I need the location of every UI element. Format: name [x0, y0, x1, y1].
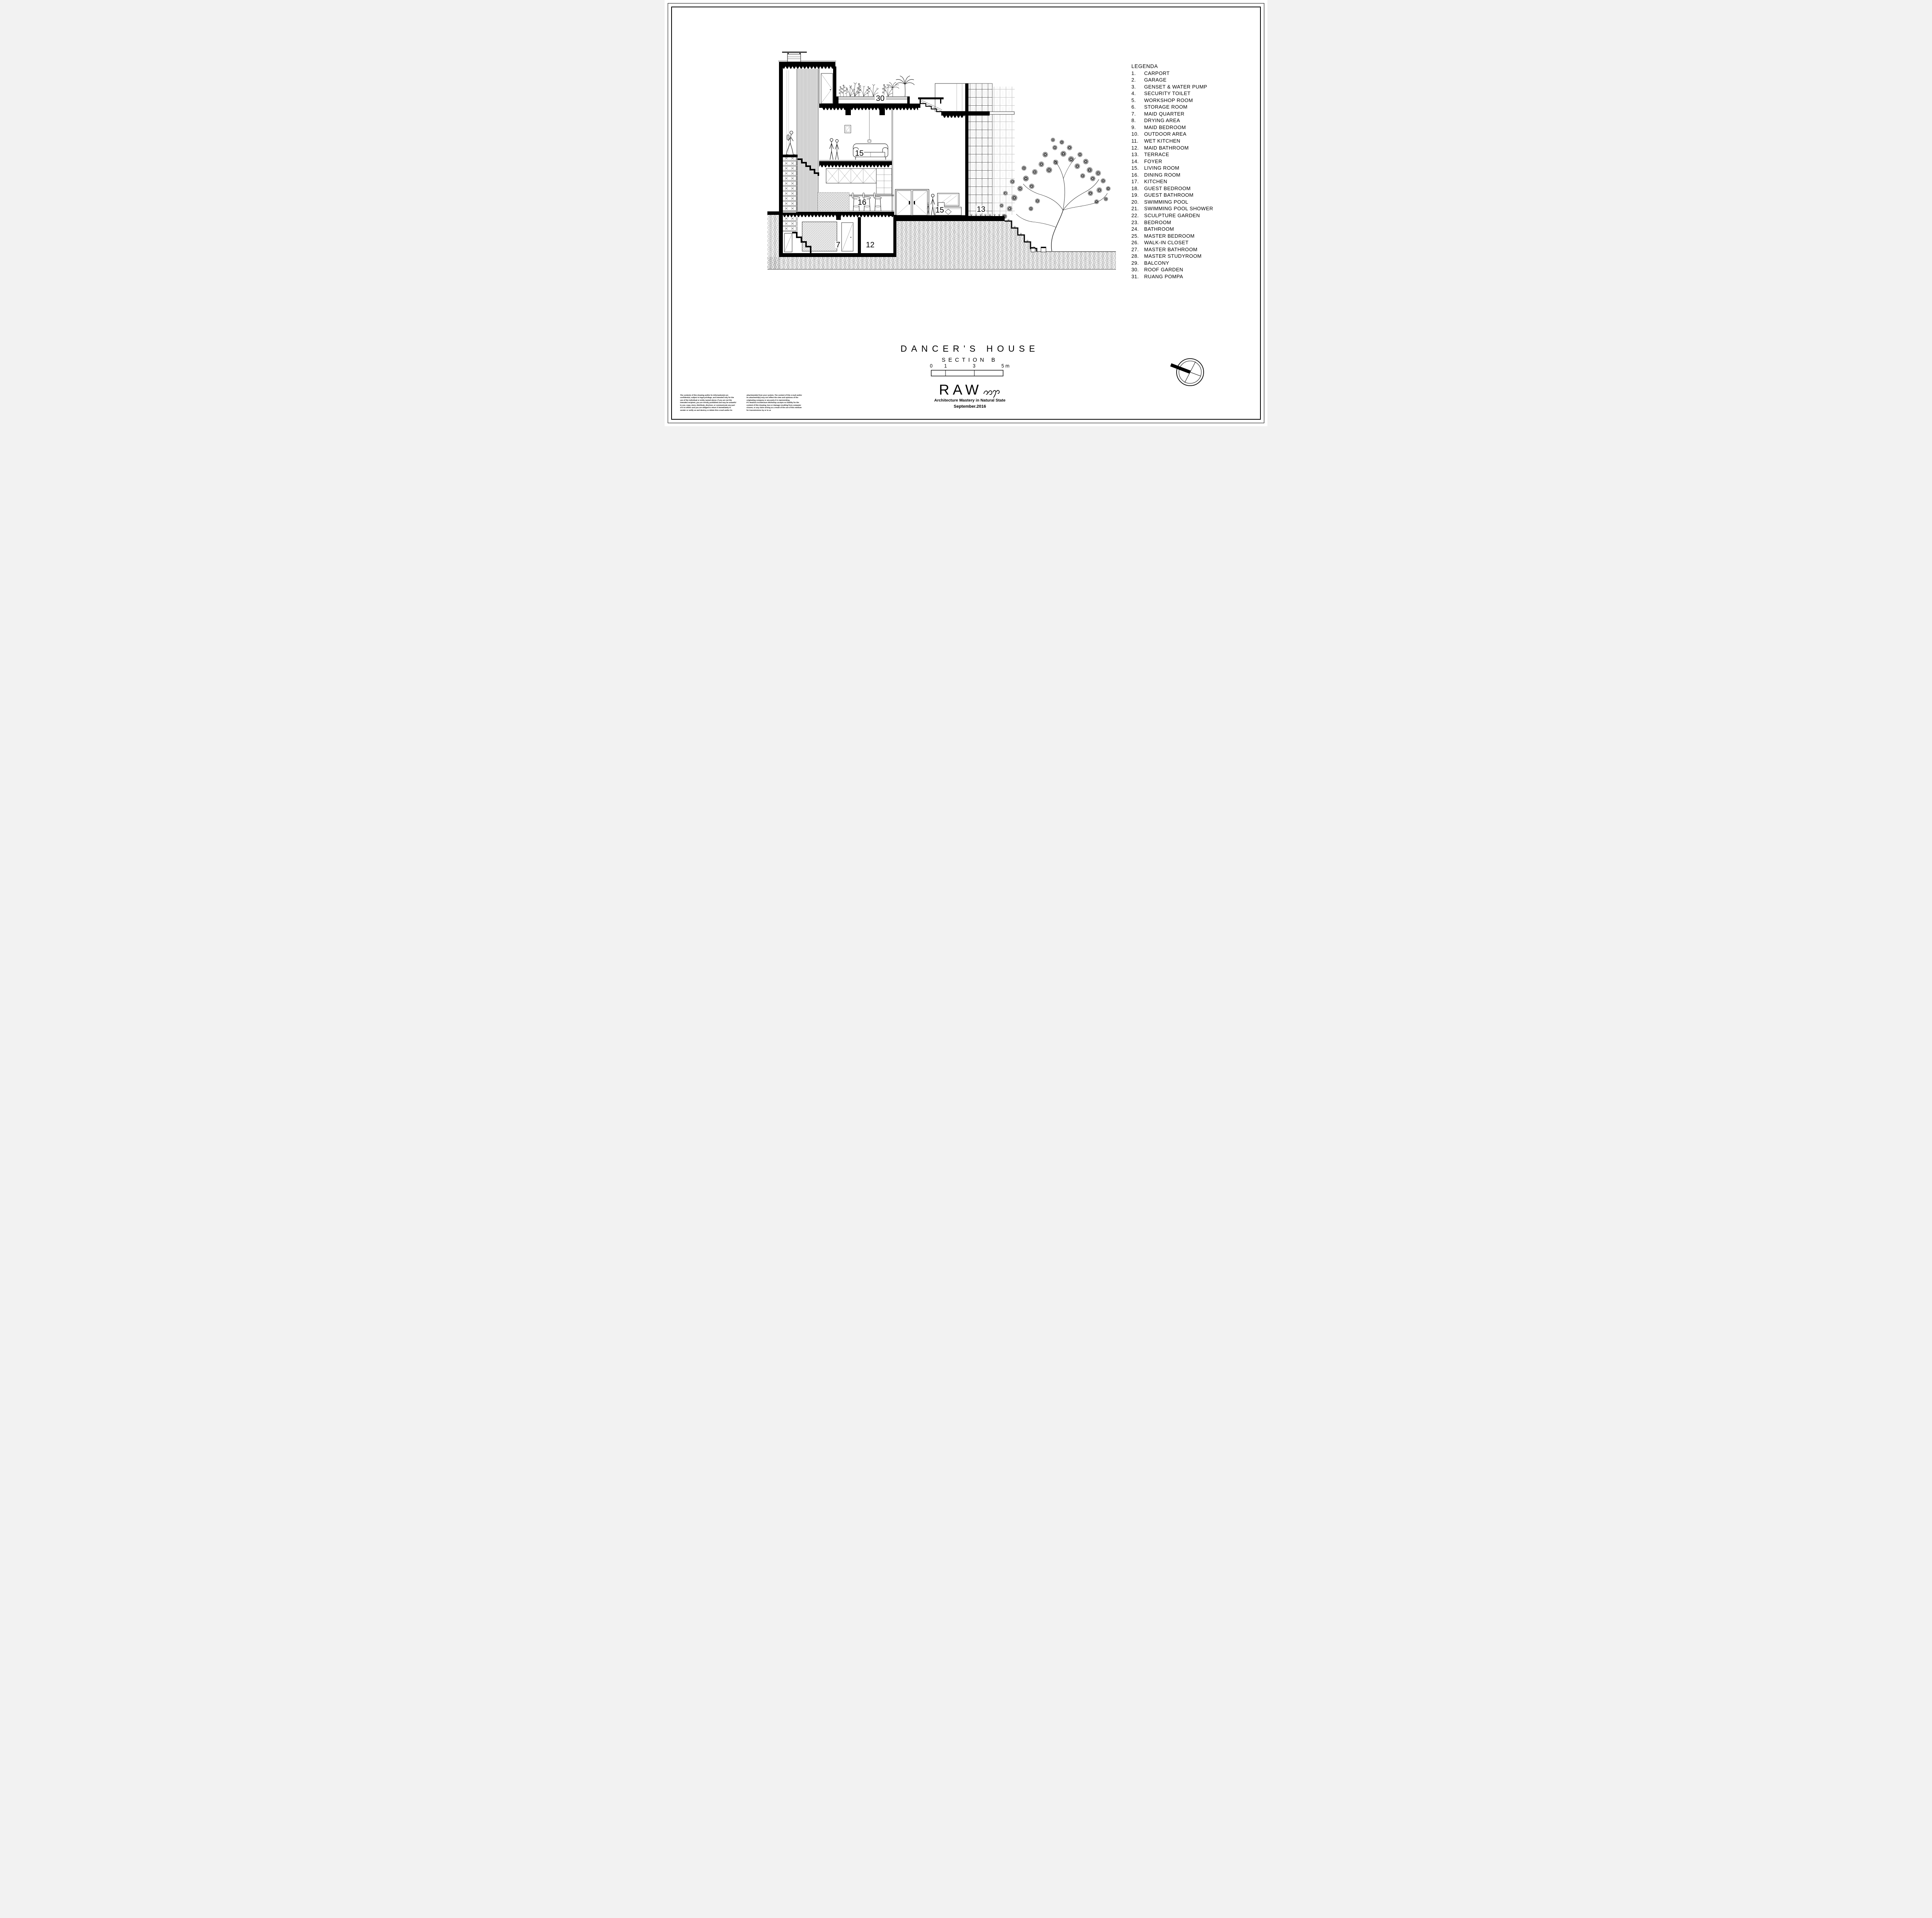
legend-item: 17.KITCHEN: [1131, 178, 1213, 185]
legend-item: 30.ROOF GARDEN: [1131, 266, 1213, 273]
scale-tick-5m: 5 m: [1002, 363, 1010, 369]
legend-item: 9.MAID BEDROOM: [1131, 124, 1213, 131]
legend-item: 3.GENSET & WATER PUMP: [1131, 83, 1213, 90]
dining-room: [818, 168, 894, 211]
legend-item: 28.MASTER STUDYROOM: [1131, 253, 1213, 260]
disclaimer: The contents of this drawing and/or its …: [680, 394, 808, 412]
legend-item: 29.BALCONY: [1131, 260, 1213, 267]
foyer-floor-slab: [894, 215, 968, 221]
legend-item: 13.TERRACE: [1131, 151, 1213, 158]
terrace-beam: [968, 111, 990, 116]
tower-roof-slab: [779, 62, 835, 66]
label-living-room: 15: [855, 149, 864, 158]
legend-title: LEGENDA: [1131, 63, 1213, 70]
svg-text:12: 12: [866, 241, 874, 249]
upper-cabinets: [826, 168, 876, 183]
roof-access-door: [819, 66, 836, 104]
person-adult: [931, 194, 935, 215]
roof-garden-plants: [839, 76, 914, 97]
drawing-sheet: 30 15 16 15 13 7: [665, 0, 1267, 426]
legend-item: 2.GARAGE: [1131, 77, 1213, 83]
legend-item: 25.MASTER BEDROOM: [1131, 233, 1213, 240]
legend-item: 10.OUTDOOR AREA: [1131, 131, 1213, 138]
label-maid-quarter: 7: [835, 241, 841, 249]
logo-block: RAW Architecture Mastery in Natural Stat…: [904, 383, 1036, 409]
legend-item: 14.FOYER: [1131, 158, 1213, 165]
disclaimer-left-column: The contents of this drawing and/or its …: [680, 394, 742, 412]
label-maid-bathroom: 12: [865, 241, 875, 249]
drawing-title: SECTION B: [711, 357, 1229, 363]
legend-item: 23.BEDROOM: [1131, 219, 1213, 226]
legend-item: 15.LIVING ROOM: [1131, 165, 1213, 172]
legend: LEGENDA 1.CARPORT 2.GARAGE 3.GENSET & WA…: [1131, 63, 1213, 280]
scale-bar: 0 1 3 5 m: [930, 363, 1010, 376]
legend-item: 22.SCULPTURE GARDEN: [1131, 212, 1213, 219]
door-handle: [850, 237, 851, 238]
legend-item: 31.RUANG POMPA: [1131, 273, 1213, 280]
foyer-double-door: [895, 189, 929, 215]
raw-script-glyphs: [983, 387, 1001, 398]
disclaimer-right-column: attachment(s) from your system. The cont…: [747, 394, 808, 412]
stair-landing: [783, 155, 798, 157]
label-roof-garden: 30: [875, 94, 886, 103]
tree-trunk: [1016, 158, 1107, 251]
tower-left-wall: [779, 62, 783, 215]
legend-item: 12.MAID BATHROOM: [1131, 145, 1213, 151]
maid-quarter-door: [842, 223, 853, 251]
legend-item: 6.STORAGE ROOM: [1131, 104, 1213, 111]
louver-screen: [797, 69, 818, 211]
legend-item: 11.WET KITCHEN: [1131, 138, 1213, 145]
legend-item: 7.MAID QUARTER: [1131, 111, 1213, 117]
label-foyer: 15: [935, 206, 944, 214]
person-standing: [830, 138, 833, 160]
legend-item: 24.BATHROOM: [1131, 226, 1213, 233]
legend-item: 21.SWIMMING POOL SHOWER: [1131, 205, 1213, 212]
person-standing: [835, 140, 839, 160]
maid-quarter-panel: [802, 222, 837, 251]
svg-text:30: 30: [876, 94, 884, 103]
skylight: [782, 52, 807, 62]
label-terrace: 13: [976, 205, 986, 214]
ground-under-basement: [767, 257, 897, 269]
basement: [779, 215, 896, 257]
title-block: DANCER'S HOUSE SECTION B: [711, 344, 1229, 363]
legend-item: 1.CARPORT: [1131, 70, 1213, 77]
roof-garden-slab: [819, 104, 920, 108]
planter-soil: [836, 97, 910, 99]
basement-stair-treads: [783, 217, 798, 232]
legend-item: 20.SWIMMING POOL: [1131, 199, 1213, 206]
svg-text:16: 16: [858, 198, 866, 207]
bar-stool: [874, 193, 881, 211]
issue-date: September.2016: [904, 404, 1036, 409]
ground-slope-mass: [968, 221, 1116, 269]
pendant-lamp: [868, 140, 871, 142]
roof-ledge-beyond: [990, 112, 1014, 114]
raw-wordmark: RAW: [939, 383, 982, 397]
terrace-slab: [968, 216, 1005, 221]
legend-item: 19.GUEST BATHROOM: [1131, 192, 1213, 199]
svg-text:13: 13: [977, 205, 985, 214]
legend-item: 18.GUEST BEDROOM: [1131, 185, 1213, 192]
terrace-wall-beyond: [992, 87, 1015, 215]
svg-text:15: 15: [855, 149, 864, 158]
tree-canopy: [999, 137, 1111, 219]
scale-tick-3: 3: [973, 363, 976, 369]
project-title: DANCER'S HOUSE: [711, 344, 1229, 354]
legend-item: 27.MASTER BATHROOM: [1131, 246, 1213, 253]
legend-item: 16.DINING ROOM: [1131, 172, 1213, 179]
scale-tick-1: 1: [944, 363, 947, 369]
legend-item: 4.SECURITY TOILET: [1131, 90, 1213, 97]
right-cut-wall: [965, 83, 968, 221]
legend-item: 26.WALK-IN CLOSET: [1131, 239, 1213, 246]
svg-text:15: 15: [935, 206, 944, 214]
foyer: [895, 189, 961, 215]
ground-under-foyer: [897, 221, 968, 269]
wall-picture: [845, 125, 851, 133]
label-dining-room: 16: [857, 198, 867, 207]
svg-text:7: 7: [836, 241, 840, 249]
legend-item: 5.WORKSHOP ROOM: [1131, 97, 1213, 104]
legend-item: 8.DRYING AREA: [1131, 117, 1213, 124]
scale-tick-0: 0: [930, 363, 933, 369]
stair-treads-stack: [783, 157, 798, 213]
terrace-tile-wall: [968, 83, 992, 216]
logo-tagline: Architecture Mastery in Natural State: [904, 398, 1036, 403]
